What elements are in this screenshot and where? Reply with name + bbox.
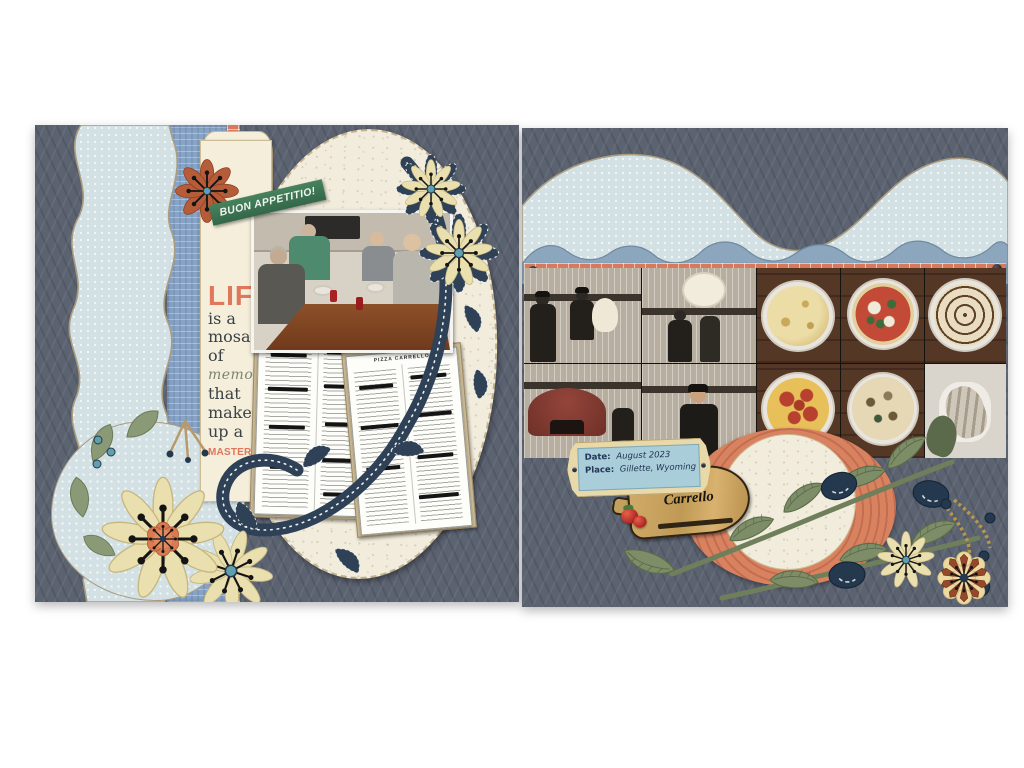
pizza-photo-calzone	[925, 364, 1006, 458]
family-dinner-photo	[251, 210, 453, 353]
date-label: Date:	[584, 452, 610, 463]
olive	[911, 478, 952, 511]
scrapbook-photo: LIFE is a mosaic of memories that make u…	[0, 0, 1024, 768]
place-label: Place:	[585, 465, 614, 476]
rust-spiky-flower	[938, 552, 991, 605]
pizza-photo-margherita	[841, 268, 924, 363]
gem	[979, 551, 989, 561]
photo-person-blond	[362, 246, 395, 282]
gem	[941, 499, 951, 509]
pizza-photo-cheese	[757, 268, 840, 363]
tomato-leaf-icon	[623, 504, 633, 510]
gem	[985, 513, 995, 523]
kitchen-photo-chefs	[524, 268, 641, 363]
restaurant-menu-right: PIZZA CARRELLO	[345, 346, 472, 535]
left-page: LIFE is a mosaic of memories that make u…	[35, 125, 519, 602]
photo-person-head	[403, 234, 421, 251]
photo-red-cup	[356, 297, 363, 310]
brad	[572, 467, 577, 472]
right-page: Date: August 2023 Place: Gillette, Wyomi…	[522, 128, 1008, 607]
photo-person-head	[370, 232, 384, 246]
date-value: August 2023	[616, 450, 670, 462]
sign-band	[658, 518, 734, 530]
place-value: Gillette, Wyoming	[620, 462, 697, 475]
bead-chains	[947, 500, 990, 560]
pizza-photo-swirl	[925, 268, 1006, 363]
plaque-place-row: Place: Gillette, Wyoming	[585, 461, 693, 478]
photo-plate	[315, 287, 331, 294]
plaque-panel: Date: August 2023 Place: Gillette, Wyomi…	[577, 444, 700, 491]
brad	[701, 463, 706, 468]
kitchen-photo-dough-toss	[642, 268, 756, 363]
olive	[951, 566, 993, 602]
photo-plate	[368, 284, 383, 291]
photo-person-head	[270, 249, 287, 265]
photo-red-cup	[330, 290, 337, 302]
date-place-plaque: Date: August 2023 Place: Gillette, Wyomi…	[566, 438, 712, 498]
